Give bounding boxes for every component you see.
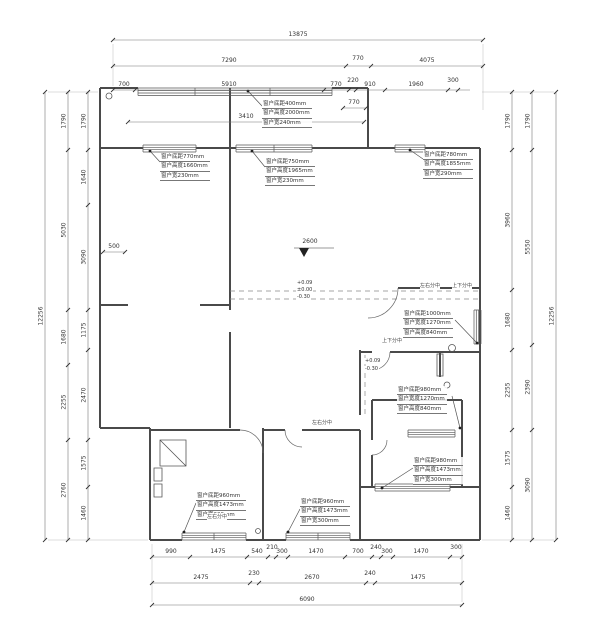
dim-label: 1790 bbox=[61, 113, 68, 128]
dim-label: 220 bbox=[347, 77, 358, 84]
dim-label: 3960 bbox=[505, 212, 512, 227]
note-label: 左右分中 bbox=[207, 513, 227, 520]
dim-label: 1470 bbox=[413, 548, 428, 555]
window-callout: 窗户底距980mm 窗户宽度1270mm 窗户高度840mm bbox=[397, 386, 447, 414]
note-label: 上下分中 bbox=[452, 282, 472, 289]
callout-line: 窗户宽240mm bbox=[262, 119, 312, 128]
dim-label: 1575 bbox=[81, 455, 88, 470]
callout-line: 窗户底距980mm bbox=[413, 457, 463, 466]
callout-line: 窗户高度840mm bbox=[403, 329, 453, 338]
dim-label: 240 bbox=[370, 544, 381, 551]
callout-line: 窗户底距780mm bbox=[423, 151, 473, 160]
note-label: 左右分中 bbox=[312, 419, 332, 426]
dim-label: 13875 bbox=[288, 31, 307, 38]
callout-line: 窗户高度1473mm bbox=[413, 466, 463, 475]
window-callout: 窗户底距770mm 窗户高度1660mm 窗户宽230mm bbox=[160, 153, 210, 181]
dim-label: 990 bbox=[165, 548, 176, 555]
dim-label: 1460 bbox=[505, 505, 512, 520]
callout-line: 窗户高度1473mm bbox=[300, 507, 350, 516]
dim-label: 300 bbox=[381, 548, 392, 555]
dim-label: 300 bbox=[276, 548, 287, 555]
floor-plan-canvas: 13875 7290 770 4075 700 5910 770 220 910… bbox=[0, 0, 600, 622]
dim-label: 1640 bbox=[81, 169, 88, 184]
callout-line: 窗户底距980mm bbox=[397, 386, 447, 395]
callout-line: 窗户底距750mm bbox=[265, 158, 315, 167]
dim-label: 2475 bbox=[193, 574, 208, 581]
floor-plan-linework bbox=[0, 0, 600, 622]
callout-line: 窗户底距400mm bbox=[262, 100, 312, 109]
floor-level-label: ±0.00 bbox=[296, 287, 313, 293]
dim-label: 2255 bbox=[505, 382, 512, 397]
dim-label: 7290 bbox=[221, 57, 236, 64]
dim-label: 5550 bbox=[525, 239, 532, 254]
dim-label: 300 bbox=[447, 77, 458, 84]
dim-label: 540 bbox=[251, 548, 262, 555]
callout-line: 窗户高度1965mm bbox=[265, 167, 315, 176]
dim-label: 1475 bbox=[210, 548, 225, 555]
callout-line: 窗户宽300mm bbox=[413, 476, 463, 485]
dim-label: 5910 bbox=[221, 81, 236, 88]
callout-line: 窗户宽290mm bbox=[423, 170, 473, 179]
corridor-level-label: +0.09 bbox=[364, 358, 381, 364]
callout-line: 窗户底距770mm bbox=[160, 153, 210, 162]
callout-line: 窗户高度1855mm bbox=[423, 160, 473, 169]
dim-label: 2470 bbox=[81, 387, 88, 402]
callout-line: 窗户底距960mm bbox=[196, 492, 246, 501]
level-marker-value: 2600 bbox=[302, 238, 317, 245]
dim-label: 5030 bbox=[61, 222, 68, 237]
dim-label: 770 bbox=[352, 55, 363, 62]
dim-label: 2760 bbox=[61, 482, 68, 497]
dim-label: 230 bbox=[248, 570, 259, 577]
inline-dim-closet: 500 bbox=[108, 243, 119, 250]
dim-label: 1460 bbox=[81, 505, 88, 520]
callout-line: 窗户底距960mm bbox=[300, 498, 350, 507]
dim-label: 1680 bbox=[505, 312, 512, 327]
window-callout: 窗户底距960mm 窗户高度1473mm 窗户宽300mm bbox=[300, 498, 350, 526]
dim-label: 1680 bbox=[61, 329, 68, 344]
floor-level-label: -0.30 bbox=[296, 294, 311, 300]
dim-label: 4075 bbox=[419, 57, 434, 64]
callout-line: 窗户宽300mm bbox=[300, 517, 350, 526]
dim-label: 770 bbox=[330, 81, 341, 88]
corridor-level-label: -0.30 bbox=[364, 366, 379, 372]
note-label: 左右分中 bbox=[420, 282, 440, 289]
dim-label: 2670 bbox=[304, 574, 319, 581]
window-callout: 窗户底距1000mm 窗户宽度1270mm 窗户高度840mm bbox=[403, 310, 453, 338]
floor-level-label: +0.09 bbox=[296, 280, 313, 286]
dim-label: 700 bbox=[352, 548, 363, 555]
window-callout: 窗户底距400mm 窗户高度2000mm 窗户宽240mm bbox=[262, 100, 312, 128]
dim-label: 1790 bbox=[81, 113, 88, 128]
dim-label: 3090 bbox=[81, 249, 88, 264]
note-label: 上下分中 bbox=[382, 337, 402, 344]
dim-label: 1960 bbox=[408, 81, 423, 88]
callout-line: 窗户高度840mm bbox=[397, 405, 447, 414]
dim-label: 3090 bbox=[525, 477, 532, 492]
dim-label: 2255 bbox=[61, 394, 68, 409]
window-callout: 窗户底距980mm 窗户高度1473mm 窗户宽300mm bbox=[413, 457, 463, 485]
dim-label: 2390 bbox=[525, 379, 532, 394]
level-marker-icon bbox=[294, 248, 334, 257]
callout-line: 窗户高度1473mm bbox=[196, 501, 246, 510]
dim-label: 1790 bbox=[525, 113, 532, 128]
dim-label: 1475 bbox=[410, 574, 425, 581]
dim-label: 6090 bbox=[299, 596, 314, 603]
callout-line: 窗户高度2000mm bbox=[262, 109, 312, 118]
dim-label: 1790 bbox=[505, 113, 512, 128]
window-callout: 窗户底距750mm 窗户高度1965mm 窗户宽230mm bbox=[265, 158, 315, 186]
dim-label: 700 bbox=[118, 81, 129, 88]
dim-label: 12256 bbox=[38, 306, 45, 325]
dim-label: 240 bbox=[364, 570, 375, 577]
callout-line: 窗户宽230mm bbox=[265, 177, 315, 186]
dim-label: 1470 bbox=[308, 548, 323, 555]
callout-line: 窗户宽230mm bbox=[160, 172, 210, 181]
callout-line: 窗户高度1660mm bbox=[160, 162, 210, 171]
callout-line: 窗户宽度1270mm bbox=[397, 395, 447, 404]
dim-label: 1175 bbox=[81, 322, 88, 337]
dim-label: 300 bbox=[450, 544, 461, 551]
dim-label: 910 bbox=[364, 81, 375, 88]
window-callout: 窗户底距780mm 窗户高度1855mm 窗户宽290mm bbox=[423, 151, 473, 179]
callout-line: 窗户宽度1270mm bbox=[403, 319, 453, 328]
dim-label: 1575 bbox=[505, 450, 512, 465]
inline-dim-balcony: 3410 bbox=[238, 113, 253, 120]
dim-label: 12256 bbox=[549, 306, 556, 325]
inline-dim-step: 770 bbox=[348, 99, 359, 106]
callout-line: 窗户底距1000mm bbox=[403, 310, 453, 319]
